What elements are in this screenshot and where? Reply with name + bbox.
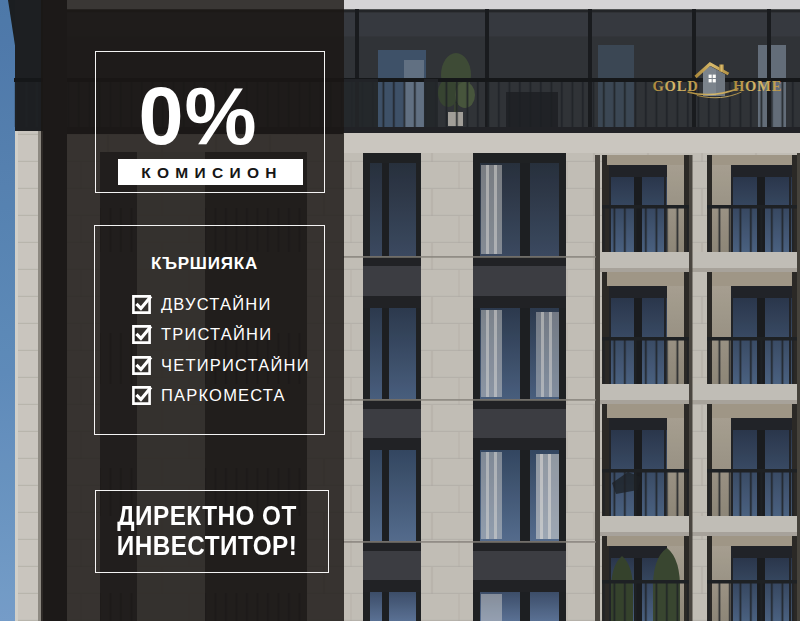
svg-text:HOME: HOME: [733, 78, 782, 94]
svg-text:GOLD: GOLD: [653, 78, 699, 94]
